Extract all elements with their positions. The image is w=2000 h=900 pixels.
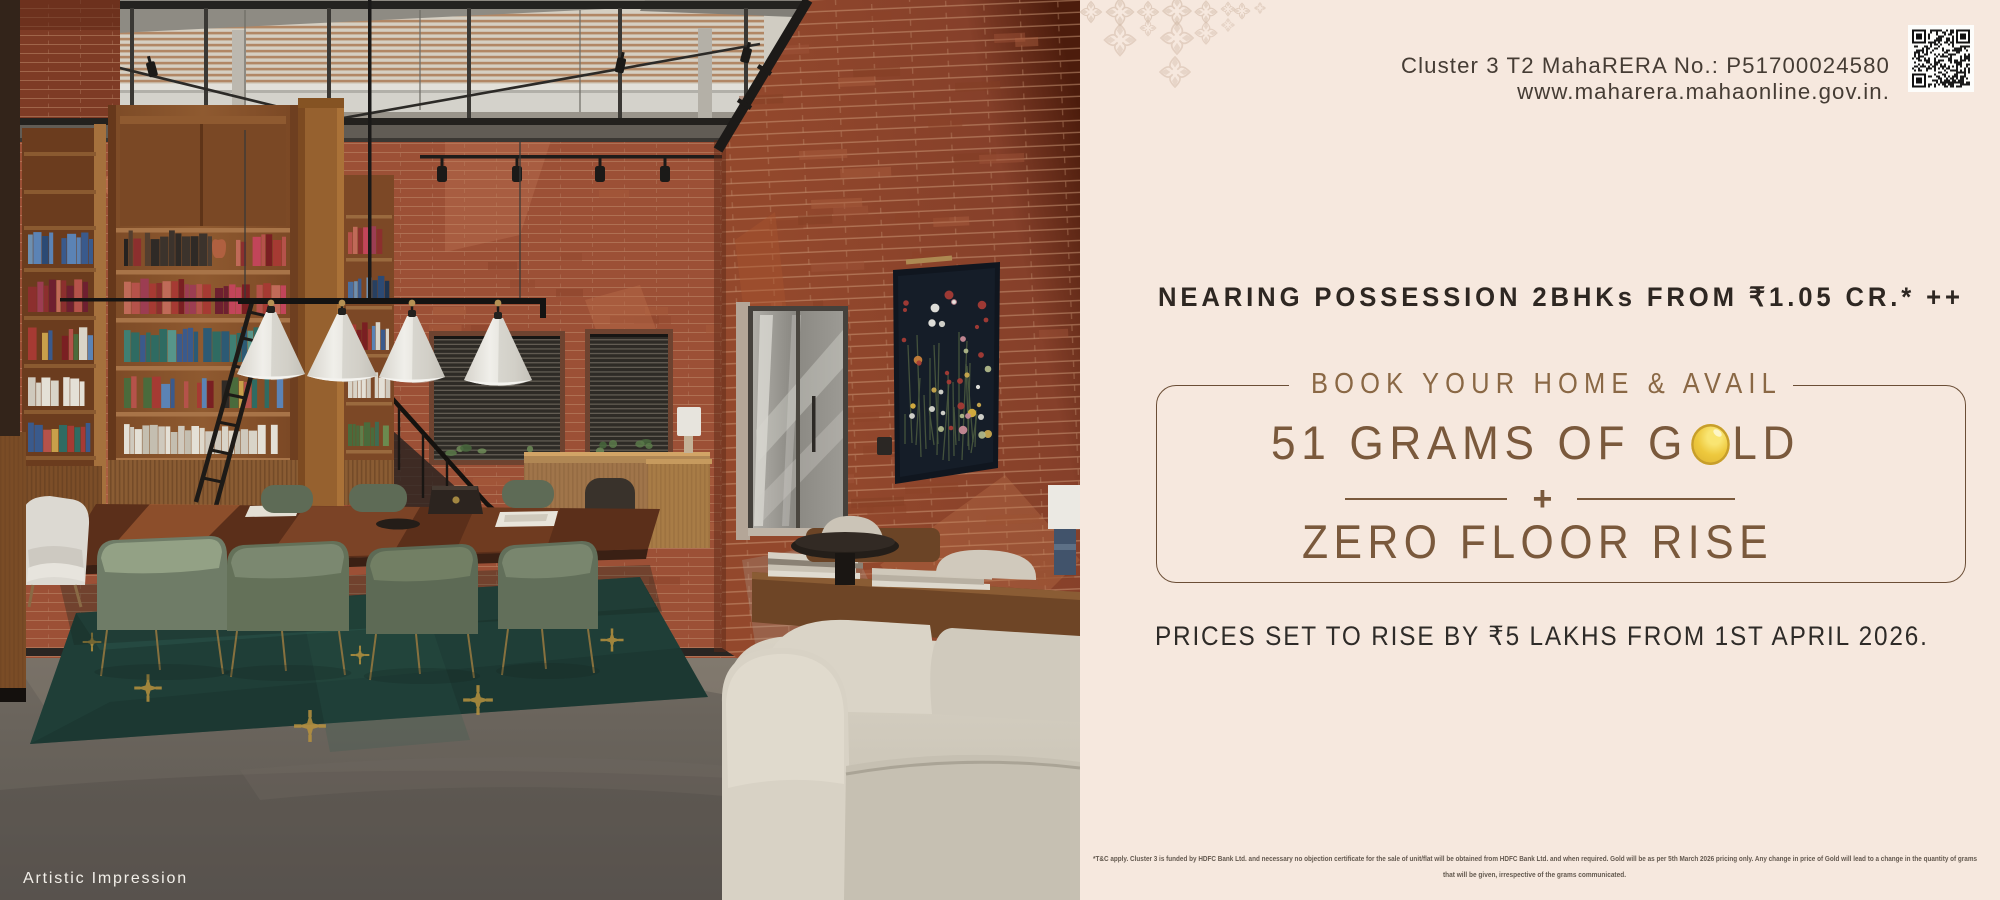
svg-text:Artistic Impression: Artistic Impression bbox=[23, 870, 188, 887]
